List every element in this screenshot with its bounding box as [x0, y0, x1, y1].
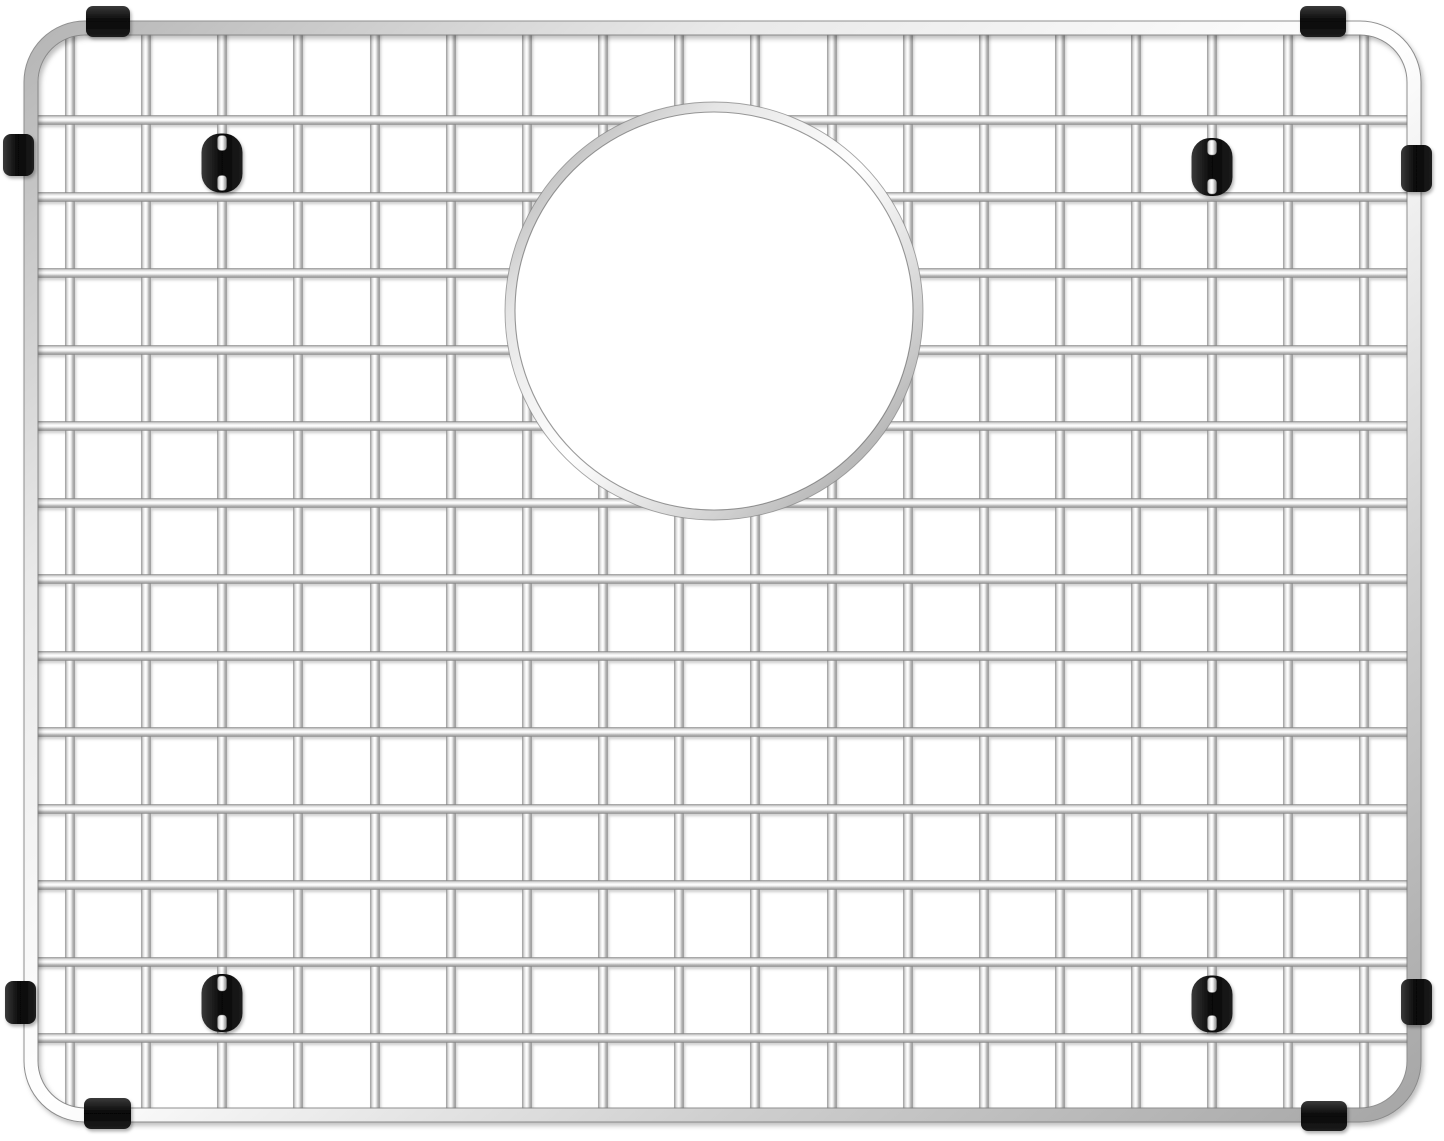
foot-notch-wire-bottom	[218, 176, 227, 191]
grid-wire-horizontal	[31, 958, 1414, 967]
drain-opening-hole	[514, 111, 914, 511]
grid-wire-horizontal	[31, 805, 1414, 814]
rubber-bumper-top-left	[86, 6, 130, 37]
drain-opening	[505, 102, 923, 520]
grid-wire-horizontal	[31, 728, 1414, 737]
grid-wire-horizontal	[31, 575, 1414, 584]
rubber-bumper-bottom-left	[84, 1098, 131, 1129]
rubber-bumper-left-lower	[5, 981, 36, 1024]
grid-wire-vertical	[523, 28, 532, 1115]
grid-wire-vertical	[142, 28, 151, 1115]
grid-wire-vertical	[1284, 28, 1293, 1115]
product-photo-sink-grid	[0, 0, 1444, 1141]
foot-notch-wire-top	[218, 976, 227, 991]
grid-wire-vertical	[904, 28, 913, 1115]
rubber-bumper-right-upper	[1401, 145, 1432, 192]
grid-wire-vertical	[980, 28, 989, 1115]
grid-wire-horizontal	[31, 652, 1414, 661]
foot-notch-wire-bottom	[218, 1015, 227, 1030]
grid-wire-vertical	[294, 28, 303, 1115]
foot-notch-wire-bottom	[1208, 1016, 1217, 1031]
foot-notch-wire-top	[1208, 978, 1217, 993]
grid-wire-vertical	[66, 28, 75, 1115]
rubber-bumper-bottom-right	[1301, 1101, 1347, 1131]
grid-wire-vertical	[371, 28, 380, 1115]
foot-notch-wire-top	[1208, 140, 1217, 155]
sink-grid-illustration	[0, 0, 1444, 1141]
grid-wire-horizontal	[31, 1034, 1414, 1043]
grid-wire-vertical	[1056, 28, 1065, 1115]
grid-wire-vertical	[447, 28, 456, 1115]
grid-wire-horizontal	[31, 881, 1414, 890]
grid-wire-vertical	[1360, 28, 1369, 1115]
rubber-bumper-right-lower	[1401, 979, 1432, 1025]
foot-notch-wire-bottom	[1208, 179, 1217, 194]
rubber-bumper-top-right	[1300, 6, 1346, 37]
foot-notch-wire-top	[218, 136, 227, 151]
rubber-bumper-left-upper	[3, 134, 34, 176]
grid-wire-vertical	[1132, 28, 1141, 1115]
